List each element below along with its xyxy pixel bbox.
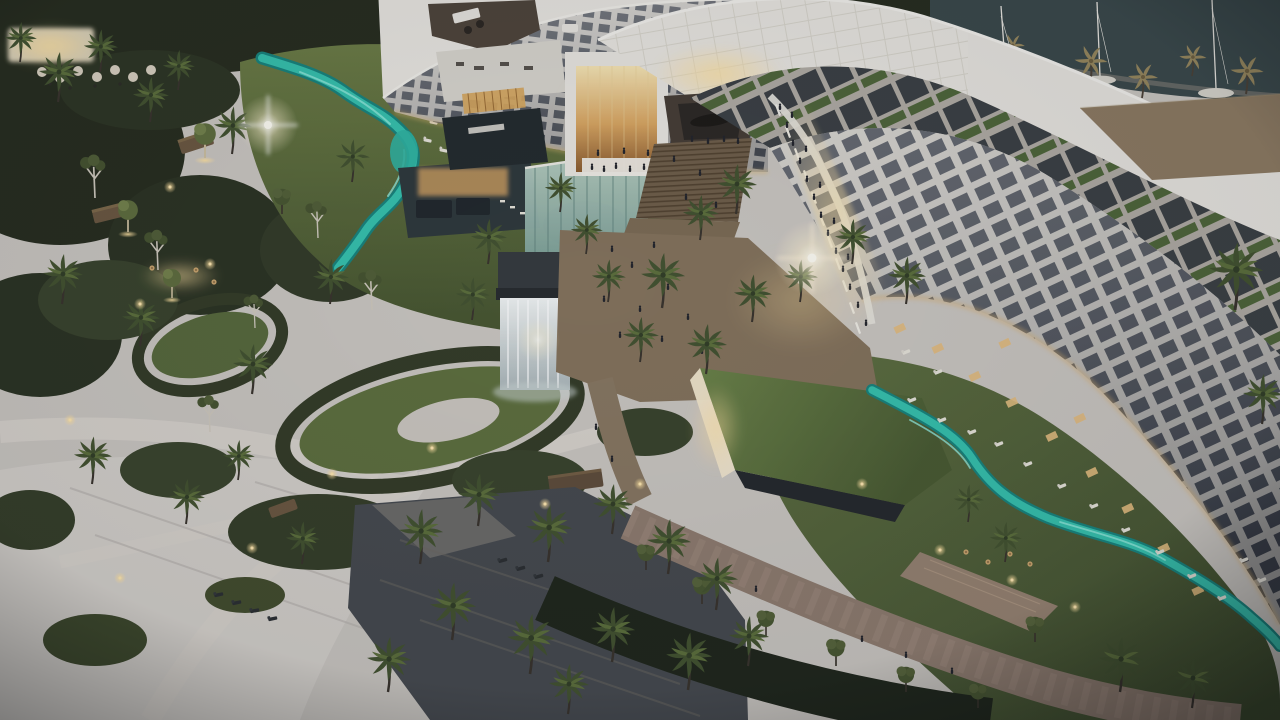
resort-rendering-canvas — [0, 0, 1280, 720]
resort-rendering — [0, 0, 1280, 720]
vignette — [0, 0, 1280, 720]
